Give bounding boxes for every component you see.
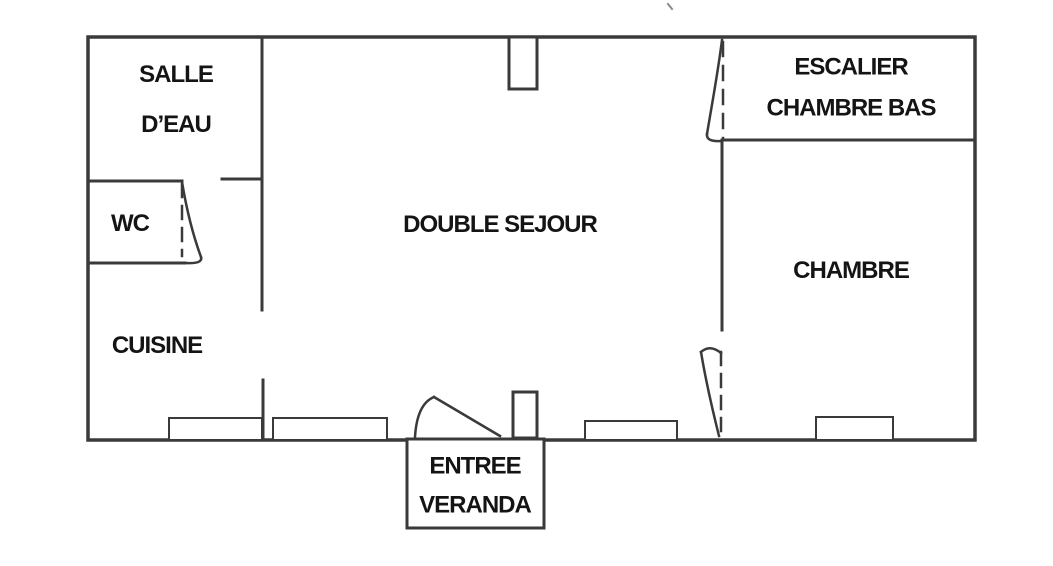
sejour-door-top-leaf (707, 40, 722, 134)
wc-door-leaf (182, 182, 201, 257)
room-label-escalier-chambre-bas: ESCALIER CHAMBRE BAS (767, 56, 936, 121)
chimney-top (509, 37, 537, 89)
entrance-door-leaf (434, 397, 500, 436)
wc-door-arc (186, 257, 201, 263)
sejour-door-top-arc (707, 134, 721, 141)
salle-deau-line1: SALLE (139, 63, 213, 87)
sejour-door-bottom-leaf (701, 352, 719, 436)
room-label-entree-veranda: ENTREE VERANDA (419, 455, 531, 518)
escalier-line2: CHAMBRE BAS (767, 97, 936, 121)
room-label-double-sejour: DOUBLE SEJOUR (403, 213, 597, 237)
floor-plan: SALLE D’EAU WC CUISINE DOUBLE SEJOUR ESC… (0, 0, 1053, 566)
entrance-door-arc (415, 397, 434, 437)
window-sejour-left (273, 418, 387, 440)
window-cuisine-left (169, 418, 262, 440)
room-label-chambre: CHAMBRE (793, 259, 909, 283)
sejour-door-bottom-arc (701, 348, 721, 353)
salle-deau-line2: D’EAU (139, 113, 213, 137)
scan-speck (668, 4, 672, 9)
entree-line1: ENTREE (419, 455, 531, 479)
escalier-line1: ESCALIER (767, 56, 936, 80)
entree-line2: VERANDA (419, 494, 531, 518)
room-label-salle-deau: SALLE D’EAU (139, 63, 213, 137)
chimney-bottom (513, 392, 537, 438)
room-label-wc: WC (111, 212, 149, 236)
window-chambre (816, 417, 893, 440)
room-label-cuisine: CUISINE (112, 334, 202, 358)
window-sejour-right (585, 421, 677, 440)
